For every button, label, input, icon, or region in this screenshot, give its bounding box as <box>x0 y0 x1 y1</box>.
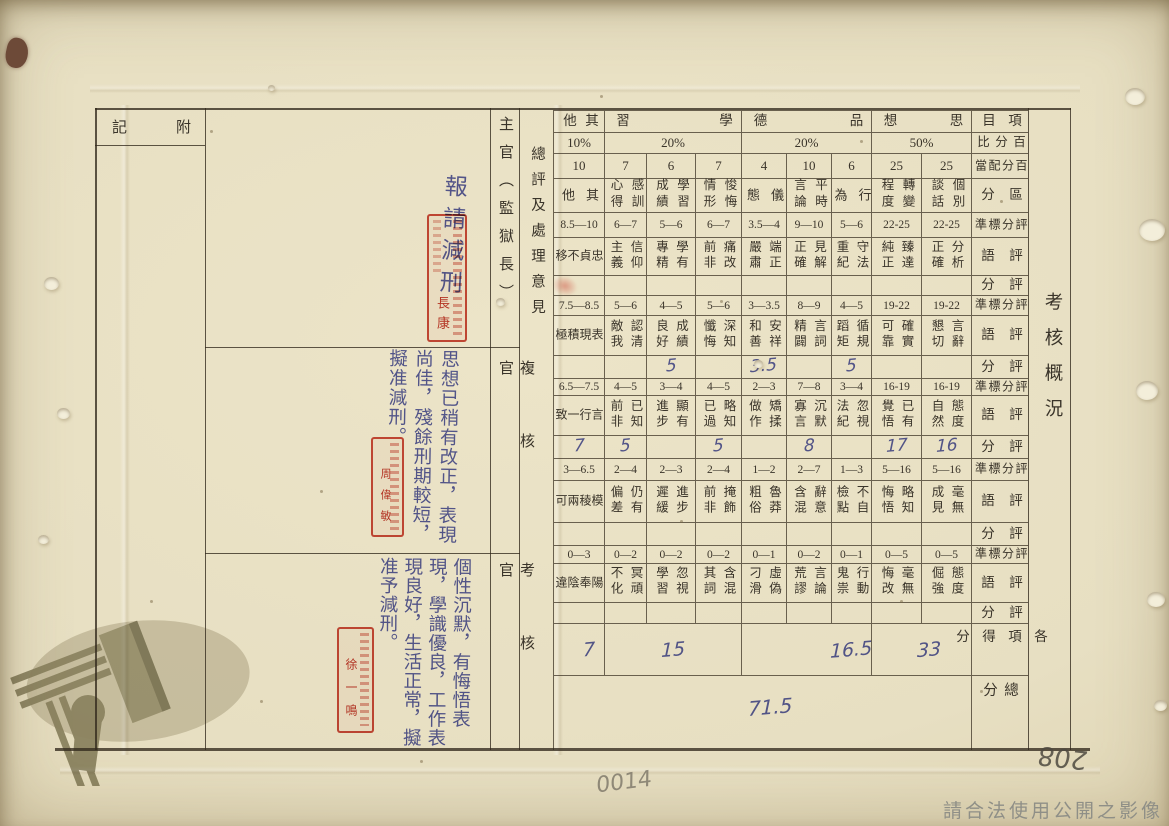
remark-b4-個別談話: 毫無成見 <box>921 480 971 522</box>
row-label-allocation: 百分配當 <box>971 153 1028 178</box>
cell-text: 7.5—8.5 <box>559 300 599 312</box>
score-b2-轉變程度 <box>871 355 921 378</box>
cell-text: 3—3.5 <box>748 300 780 312</box>
alloc-轉變程度: 25 <box>871 153 921 178</box>
paper-hole <box>1154 700 1167 711</box>
row-label-remark-b2: 評語 <box>971 315 1028 355</box>
cell-text: 0—2 <box>660 549 683 561</box>
vertical-text: 學有專精 <box>651 240 691 274</box>
row-label-standard-b5: 評分標準 <box>971 545 1028 563</box>
cell-text: 10 <box>803 158 816 174</box>
cell-text: 16-19 <box>933 381 960 393</box>
remark-b2-學習成績: 成績良好 <box>646 315 695 355</box>
remark-b2-個別談話: 言辭懇切 <box>921 315 971 355</box>
remark-b2-其他: 表現積極 <box>553 315 604 355</box>
remark-b1-其他: 忠貞不移 <box>553 237 604 275</box>
remark-b3-感訓心得: 已知前非 <box>604 395 646 435</box>
remark-b1-學習成績: 學有專精 <box>646 237 695 275</box>
standard-b5-個別談話: 0—5 <box>921 545 971 563</box>
cell-text: 8—9 <box>798 300 821 312</box>
row-label-score-b2: 評分 <box>971 355 1028 378</box>
standard-b1-個別談話: 22-25 <box>921 212 971 237</box>
score-b2-平時言論 <box>786 355 831 378</box>
cell-text: 2—4 <box>707 464 730 476</box>
remark-b1-悛悔情形: 痛改前非 <box>695 237 741 275</box>
vertical-text: 評分 <box>972 359 1028 376</box>
handwritten-score: 15 <box>661 637 685 661</box>
paper-speck <box>860 140 863 143</box>
cell-text: 2—3 <box>753 381 776 393</box>
cell-text: 50% <box>910 135 934 151</box>
score-b3-感訓心得: 5 <box>604 435 646 458</box>
cell-text: 1—2 <box>753 464 776 476</box>
vertical-text: 百分配當 <box>973 159 1027 174</box>
score-b1-轉變程度 <box>871 275 921 295</box>
paper-hole <box>754 360 763 368</box>
standard-b1-悛悔情形: 6—7 <box>695 212 741 237</box>
score-b4-個別談話 <box>921 522 971 545</box>
row-label-total: 總分 <box>971 675 1028 750</box>
group-header-思想: 思想 <box>871 110 971 132</box>
officer-col-left <box>490 108 491 750</box>
cell-text: 8.5—10 <box>560 219 597 231</box>
cell-text: 19-22 <box>883 300 910 312</box>
vertical-text: 評分標準 <box>973 380 1027 395</box>
paper-speck <box>320 490 323 493</box>
group-percent-思想: 50% <box>871 132 971 153</box>
remark-b4-感訓心得: 仍有偏差 <box>604 480 646 522</box>
vertical-text: 行為 <box>828 188 876 204</box>
subtotal-品德: 16.5 <box>741 623 871 675</box>
cell-text: 6 <box>668 158 675 174</box>
officer-label-reviewer: 複核官 <box>495 360 537 545</box>
remark-b5-悛悔情形: 含混其詞 <box>695 563 741 602</box>
vertical-text: 評語 <box>972 493 1028 510</box>
appendix-underline <box>95 145 205 146</box>
vertical-text: 言辭懇切 <box>927 319 967 353</box>
vertical-text: 不自檢點 <box>832 485 872 519</box>
standard-b5-其他: 0—3 <box>553 545 604 563</box>
vertical-text: 魯莽粗俗 <box>744 485 784 519</box>
cell-text: 3—4 <box>660 381 683 393</box>
standard-b1-行為: 5—6 <box>831 212 871 237</box>
cell-text: 5—16 <box>882 464 911 476</box>
row-label-remark-b5: 評語 <box>971 563 1028 602</box>
category-行為: 行為 <box>831 178 871 212</box>
cell-text: 0—5 <box>885 549 908 561</box>
cell-text: 4—5 <box>840 300 863 312</box>
vertical-text: 評分 <box>972 605 1028 622</box>
category-學習成績: 學習成績 <box>646 178 695 212</box>
remark-b4-轉變程度: 略知悔悟 <box>871 480 921 522</box>
cell-text: 19-22 <box>933 300 960 312</box>
vertical-text: 評分標準 <box>973 462 1027 477</box>
cell-text: 20% <box>795 135 819 151</box>
officer-label-assessor: 考核官 <box>495 562 537 747</box>
remark-b4-行為: 不自檢點 <box>831 480 871 522</box>
vertical-text: 毫無悔改 <box>877 566 917 600</box>
standard-b2-行為: 4—5 <box>831 295 871 315</box>
cell-text: 3.5—4 <box>748 219 780 231</box>
standard-b5-平時言論: 0—2 <box>786 545 831 563</box>
score-b1-平時言論 <box>786 275 831 295</box>
remark-b1-行為: 守法重紀 <box>831 237 871 275</box>
remark-b5-學習成績: 忽視學習 <box>646 563 695 602</box>
row-label-subtotal: 各項得分 <box>971 623 1028 675</box>
standard-b4-個別談話: 5—16 <box>921 458 971 480</box>
cell-text: 25 <box>890 158 903 174</box>
vertical-text: 言詞精闢 <box>789 319 829 353</box>
vertical-text: 略知悔悟 <box>877 485 917 519</box>
assessment-form: 考核概況 附記 總評及處理意見 主官（監獄長） 複核官 考核官 報請減刑 思想已… <box>0 0 1169 826</box>
form-title: 考核概況 <box>1039 292 1065 462</box>
remark-b2-轉變程度: 確實可靠 <box>871 315 921 355</box>
row-label-remark-b1: 評語 <box>971 237 1028 275</box>
vertical-text: 信仰主義 <box>606 240 646 274</box>
vertical-text: 進步遲緩 <box>651 485 691 519</box>
vertical-text: 評分標準 <box>973 547 1027 562</box>
vertical-text: 深知懺悔 <box>699 319 739 353</box>
score-b5-平時言論 <box>786 602 831 623</box>
cell-text: 5—6 <box>707 300 730 312</box>
paper-speck <box>980 690 983 693</box>
standard-b4-儀態: 1—2 <box>741 458 786 480</box>
row-label-standard-b4: 評分標準 <box>971 458 1028 480</box>
vertical-text: 總分 <box>979 682 1021 744</box>
row-label-score-b1: 評分 <box>971 275 1028 295</box>
group-percent-學習: 20% <box>604 132 741 153</box>
overall-opinion-label: 總評及處理意見 <box>527 146 548 356</box>
paper-hole <box>1147 592 1165 607</box>
vertical-text: 辭意含混 <box>789 485 829 519</box>
vertical-text: 學習成績 <box>650 178 692 213</box>
assessor-seal: 徐一鳴 <box>337 627 374 733</box>
paper-hole <box>1139 219 1165 241</box>
standard-b1-其他: 8.5—10 <box>553 212 604 237</box>
warden-seal: 長康 <box>427 214 467 342</box>
score-b1-其他 <box>553 275 604 295</box>
handwritten-score: 16.5 <box>830 637 873 663</box>
handwritten-score: 7 <box>573 435 584 456</box>
vertical-text: 評語 <box>972 575 1028 592</box>
score-b5-個別談話 <box>921 602 971 623</box>
reviewer-seal-name: 周偉敏 <box>377 468 393 531</box>
cell-text: 3—4 <box>840 381 863 393</box>
cell-text: 25 <box>940 158 953 174</box>
score-b4-其他 <box>553 522 604 545</box>
group-percent-其他: 10% <box>553 132 604 153</box>
frame-top <box>95 108 1071 110</box>
vertical-text: 評語 <box>972 407 1028 424</box>
row-label-standard-b1: 評分標準 <box>971 212 1028 237</box>
standard-b1-感訓心得: 6—7 <box>604 212 646 237</box>
remark-b1-平時言論: 見解正確 <box>786 237 831 275</box>
row-label-score-b3: 評分 <box>971 435 1028 458</box>
vertical-text: 顯有進步 <box>651 399 691 433</box>
cell-text: 7 <box>622 158 629 174</box>
cell-text: 5—6 <box>660 219 683 231</box>
cell-text: 22-25 <box>933 219 960 231</box>
standard-b4-感訓心得: 2—4 <box>604 458 646 480</box>
appendix-divider <box>205 108 206 750</box>
score-b3-儀態 <box>741 435 786 458</box>
cell-text: 20% <box>661 135 685 151</box>
paper-hole <box>268 85 275 91</box>
remark-b5-個別談話: 態度倔強 <box>921 563 971 602</box>
vertical-text: 言論荒謬 <box>789 566 829 600</box>
vertical-text: 分析正確 <box>927 240 967 274</box>
paper-hole <box>44 277 59 290</box>
vertical-text: 評分 <box>972 526 1028 543</box>
page-number: 208 <box>1035 740 1091 775</box>
cell-text: 2—4 <box>614 464 637 476</box>
score-b5-儀態 <box>741 602 786 623</box>
standard-b4-悛悔情形: 2—4 <box>695 458 741 480</box>
vertical-text: 已有覺悟 <box>877 399 917 433</box>
vertical-text: 表現積極 <box>555 328 603 343</box>
remark-b3-悛悔情形: 略知已過 <box>695 395 741 435</box>
standard-b2-儀態: 3—3.5 <box>741 295 786 315</box>
remark-b3-平時言論: 沉默寡言 <box>786 395 831 435</box>
standard-b2-轉變程度: 19-22 <box>871 295 921 315</box>
standard-b5-轉變程度: 0—5 <box>871 545 921 563</box>
handwritten-score: 16 <box>936 435 958 457</box>
remark-b1-儀態: 端正嚴肅 <box>741 237 786 275</box>
category-儀態: 儀態 <box>741 178 786 212</box>
standard-b2-學習成績: 4—5 <box>646 295 695 315</box>
standard-b3-個別談話: 16-19 <box>921 378 971 395</box>
vertical-text: 臻達純正 <box>877 240 917 274</box>
score-b2-感訓心得 <box>604 355 646 378</box>
vertical-text: 轉變程度 <box>876 178 918 213</box>
cell-text: 0—1 <box>753 549 776 561</box>
cell-text: 3—6.5 <box>563 464 595 476</box>
vertical-text: 痛改前非 <box>699 240 739 274</box>
standard-b3-學習成績: 3—4 <box>646 378 695 395</box>
paper-hole <box>1136 381 1158 400</box>
vertical-text: 各項得分 <box>948 629 1052 670</box>
score-b4-平時言論 <box>786 522 831 545</box>
alloc-個別談話: 25 <box>921 153 971 178</box>
remark-b2-行為: 循規蹈矩 <box>831 315 871 355</box>
vertical-text: 態度倔強 <box>927 566 967 600</box>
score-b2-學習成績: 5 <box>646 355 695 378</box>
category-平時言論: 平時言論 <box>786 178 831 212</box>
cell-text: 2—7 <box>798 464 821 476</box>
vertical-text: 評語 <box>972 327 1028 344</box>
remark-b5-平時言論: 言論荒謬 <box>786 563 831 602</box>
cell-text: 4—5 <box>660 300 683 312</box>
cell-text: 2—3 <box>660 464 683 476</box>
paper-speck <box>150 600 153 603</box>
remark-b3-個別談話: 態度自然 <box>921 395 971 435</box>
handwritten-score: 5 <box>846 355 857 376</box>
row-label-percent: 百分比 <box>971 132 1028 153</box>
vertical-text: 評語 <box>972 248 1028 265</box>
vertical-text: 思想 <box>856 113 988 130</box>
vertical-text: 百分比 <box>973 135 1027 151</box>
vertical-text: 言行一致 <box>555 408 603 423</box>
cell-text: 5—6 <box>614 300 637 312</box>
score-b5-其他 <box>553 602 604 623</box>
group-header-品德: 品德 <box>741 110 871 132</box>
vertical-text: 悛悔情形 <box>698 178 740 213</box>
score-b2-儀態: 3.5 <box>741 355 786 378</box>
score-b4-轉變程度 <box>871 522 921 545</box>
handwritten-score: 33 <box>917 637 941 661</box>
remark-b1-轉變程度: 臻達純正 <box>871 237 921 275</box>
standard-b1-儀態: 3.5—4 <box>741 212 786 237</box>
vertical-text: 評分標準 <box>973 218 1027 233</box>
score-b2-悛悔情形 <box>695 355 741 378</box>
standard-b3-其他: 6.5—7.5 <box>553 378 604 395</box>
standard-b2-感訓心得: 5—6 <box>604 295 646 315</box>
vertical-text: 含混其詞 <box>699 566 739 600</box>
remark-b3-轉變程度: 已有覺悟 <box>871 395 921 435</box>
paper-speck <box>720 300 723 303</box>
remark-b5-行為: 行動鬼祟 <box>831 563 871 602</box>
vertical-text: 忽視學習 <box>651 566 691 600</box>
frame-left <box>95 108 97 750</box>
cell-text: 7 <box>715 158 722 174</box>
cell-text: 0—2 <box>707 549 730 561</box>
vertical-text: 安祥和善 <box>744 319 784 353</box>
standard-b4-其他: 3—6.5 <box>553 458 604 480</box>
cell-text: 6—7 <box>707 219 730 231</box>
standard-b3-平時言論: 7—8 <box>786 378 831 395</box>
standard-b4-行為: 1—3 <box>831 458 871 480</box>
score-b5-學習成績 <box>646 602 695 623</box>
score-b4-感訓心得 <box>604 522 646 545</box>
remark-b1-個別談話: 分析正確 <box>921 237 971 275</box>
vertical-text: 忠貞不移 <box>555 249 603 264</box>
vertical-text: 成績良好 <box>651 319 691 353</box>
standard-b2-平時言論: 8—9 <box>786 295 831 315</box>
vertical-text: 認清敵我 <box>606 319 646 353</box>
vertical-text: 感訓心得 <box>605 178 647 213</box>
vertical-text: 端正嚴肅 <box>744 240 784 274</box>
remark-b3-儀態: 矯揉做作 <box>741 395 786 435</box>
category-感訓心得: 感訓心得 <box>604 178 646 212</box>
score-b1-儀態 <box>741 275 786 295</box>
vertical-text: 評分標準 <box>973 298 1027 313</box>
remark-b3-行為: 忽視法紀 <box>831 395 871 435</box>
cell-text: 4 <box>761 158 768 174</box>
standard-b2-悛悔情形: 5—6 <box>695 295 741 315</box>
paper-speck <box>900 600 903 603</box>
vertical-text: 略知已過 <box>699 399 739 433</box>
vertical-text: 見解正確 <box>789 240 829 274</box>
cell-text: 22-25 <box>883 219 910 231</box>
alloc-儀態: 4 <box>741 153 786 178</box>
score-b5-感訓心得 <box>604 602 646 623</box>
standard-b3-感訓心得: 4—5 <box>604 378 646 395</box>
remark-b2-感訓心得: 認清敵我 <box>604 315 646 355</box>
vertical-text: 虛偽刁滑 <box>744 566 784 600</box>
remark-b2-平時言論: 言詞精闢 <box>786 315 831 355</box>
score-b4-學習成績 <box>646 522 695 545</box>
category-轉變程度: 轉變程度 <box>871 178 921 212</box>
remark-b2-悛悔情形: 深知懺悔 <box>695 315 741 355</box>
group-percent-品德: 20% <box>741 132 871 153</box>
handwritten-score: 17 <box>886 435 908 457</box>
standard-b4-學習成績: 2—3 <box>646 458 695 480</box>
seal-texture <box>453 220 462 335</box>
category-個別談話: 個別談話 <box>921 178 971 212</box>
cell-text: 4—5 <box>614 381 637 393</box>
remark-b4-其他: 模稜兩可 <box>553 480 604 522</box>
remark-b5-轉變程度: 毫無悔改 <box>871 563 921 602</box>
vertical-text: 行動鬼祟 <box>832 566 872 600</box>
remark-b4-儀態: 魯莽粗俗 <box>741 480 786 522</box>
score-b5-轉變程度 <box>871 602 921 623</box>
row-label-standard-b3: 評分標準 <box>971 378 1028 395</box>
vertical-text: 評分 <box>972 277 1028 294</box>
score-b2-個別談話 <box>921 355 971 378</box>
remark-b5-其他: 陽奉陰違 <box>553 563 604 602</box>
cell-text: 5—16 <box>932 464 961 476</box>
vertical-text: 陽奉陰違 <box>555 576 603 591</box>
standard-b1-轉變程度: 22-25 <box>871 212 921 237</box>
score-b3-悛悔情形: 5 <box>695 435 741 458</box>
remark-b5-感訓心得: 冥頑不化 <box>604 563 646 602</box>
vertical-text: 冥頑不化 <box>606 566 646 600</box>
standard-b3-悛悔情形: 4—5 <box>695 378 741 395</box>
section-divider-2 <box>205 553 520 554</box>
standard-b1-平時言論: 9—10 <box>786 212 831 237</box>
vertical-text: 其他 <box>555 188 603 204</box>
row-label-score-b4: 評分 <box>971 522 1028 545</box>
assessor-comment: 個性沉默，有悔悟表現，學識優良，工作表現良好，生活正常，擬准予減刑。 <box>373 557 473 764</box>
paper-speck <box>1000 200 1003 203</box>
score-b3-平時言論: 8 <box>786 435 831 458</box>
officer-col-right <box>519 108 520 750</box>
vertical-text: 仍有偏差 <box>606 485 646 519</box>
cell-text: 10% <box>567 135 591 151</box>
alloc-悛悔情形: 7 <box>695 153 741 178</box>
category-其他: 其他 <box>553 178 604 212</box>
cell-text: 5—6 <box>840 219 863 231</box>
score-b5-行為 <box>831 602 871 623</box>
frame-right <box>1070 108 1071 750</box>
standard-b3-轉變程度: 16-19 <box>871 378 921 395</box>
standard-b5-感訓心得: 0—2 <box>604 545 646 563</box>
vertical-text: 平時言論 <box>788 178 830 213</box>
cell-text: 6 <box>848 158 855 174</box>
cell-text: 6.5—7.5 <box>559 381 599 393</box>
cell-text: 10 <box>573 158 586 174</box>
score-b4-儀態 <box>741 522 786 545</box>
frame-bottom <box>55 748 1090 751</box>
archive-watermark-text: 請合法使用公開之影像 <box>943 796 1163 823</box>
standard-b3-儀態: 2—3 <box>741 378 786 395</box>
score-b1-學習成績 <box>646 275 695 295</box>
cell-text: 6—7 <box>614 219 637 231</box>
score-b4-悛悔情形 <box>695 522 741 545</box>
vertical-text: 確實可靠 <box>877 319 917 353</box>
cell-text: 0—2 <box>614 549 637 561</box>
paper-speck <box>600 95 603 98</box>
remark-b3-其他: 言行一致 <box>553 395 604 435</box>
row-label-remark-b4: 評語 <box>971 480 1028 522</box>
reviewer-seal: 周偉敏 <box>371 437 404 537</box>
vertical-text: 項目 <box>974 113 1026 130</box>
standard-b2-其他: 7.5—8.5 <box>553 295 604 315</box>
row-label-remark-b3: 評語 <box>971 395 1028 435</box>
paper-hole <box>1125 88 1145 105</box>
score-b1-行為 <box>831 275 871 295</box>
row-label-standard-b2: 評分標準 <box>971 295 1028 315</box>
